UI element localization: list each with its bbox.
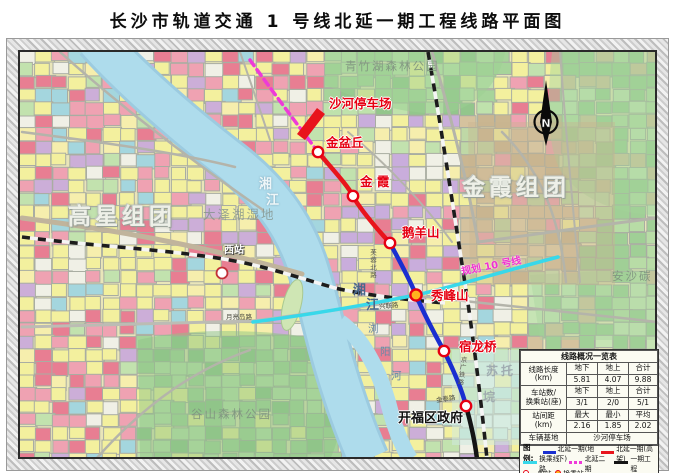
length-val3: 9.88: [629, 374, 658, 386]
spacing-col2: 最小: [598, 409, 629, 421]
station-marker-kaifu-government: [461, 401, 471, 411]
spacing-col3: 平均: [629, 409, 658, 421]
map-legend: 图例: 北延一期(地下) 北延一期(高架) 换乘线路 北延二期: [520, 445, 658, 473]
route-plan-page: 长沙市轨道交通 1 号线北延一期工程线路平面图: [0, 0, 675, 473]
length-val1: 5.81: [567, 374, 598, 386]
railway-station-icon: [217, 268, 228, 279]
station-marker-sulongqiao: [439, 346, 449, 356]
station-marker-xiufengshan: [410, 289, 421, 300]
stations-col1: 地下: [567, 386, 598, 398]
row-length-label: 线路长度(km): [521, 363, 567, 386]
page-title: 长沙市轨道交通 1 号线北延一期工程线路平面图: [110, 7, 566, 32]
legend-swatch-phase2: [569, 461, 583, 464]
legend-swatch-transfer-line: [523, 461, 537, 464]
length-col2: 地上: [598, 363, 629, 375]
stations-col3: 合计: [629, 386, 658, 398]
north-arrow-letter: N: [541, 117, 550, 130]
legend-swatch-transfer-station: [555, 470, 561, 473]
spacing-val1: 2.16: [567, 421, 598, 433]
legend-label-phase1: 一期工程: [630, 453, 656, 473]
table-title: 线路概况一览表: [521, 351, 658, 363]
station-marker-jinxia: [348, 191, 358, 201]
length-val2: 4.07: [598, 374, 629, 386]
stations-val3: 5/1: [629, 398, 658, 410]
legend-item-regular-station: 一般站: [523, 468, 551, 473]
length-col3: 合计: [629, 363, 658, 375]
spacing-col1: 最大: [567, 409, 598, 421]
station-marker-jinpenqiu: [313, 147, 323, 157]
stations-val2: 2/0: [598, 398, 629, 410]
stations-val1: 3/1: [567, 398, 598, 410]
line-overview-table: 线路概况一览表 线路长度(km) 地下 地上 合计 5.81 4.07 9.88…: [519, 349, 659, 473]
legend-label-transfer-station: 换乘站: [563, 468, 583, 473]
stations-col2: 地上: [598, 386, 629, 398]
title-bar: 长沙市轨道交通 1 号线北延一期工程线路平面图: [0, 0, 675, 38]
station-marker-eyangshan: [385, 238, 395, 248]
legend-item-phase1: 一期工程: [614, 453, 656, 473]
legend-label-phase2: 北延二期: [585, 453, 611, 473]
legend-label-regular-station: 一般站: [531, 468, 551, 473]
row-spacing-label: 站间距(km): [521, 409, 567, 432]
length-col1: 地下: [567, 363, 598, 375]
legend-swatch-phase1: [614, 461, 628, 464]
legend-swatch-regular-station: [523, 470, 529, 473]
legend-item-transfer-station: 换乘站: [555, 468, 583, 473]
spacing-val2: 1.85: [598, 421, 629, 433]
spacing-val3: 2.02: [629, 421, 658, 433]
row-stations-label: 车站数/换乘站(座): [521, 386, 567, 409]
